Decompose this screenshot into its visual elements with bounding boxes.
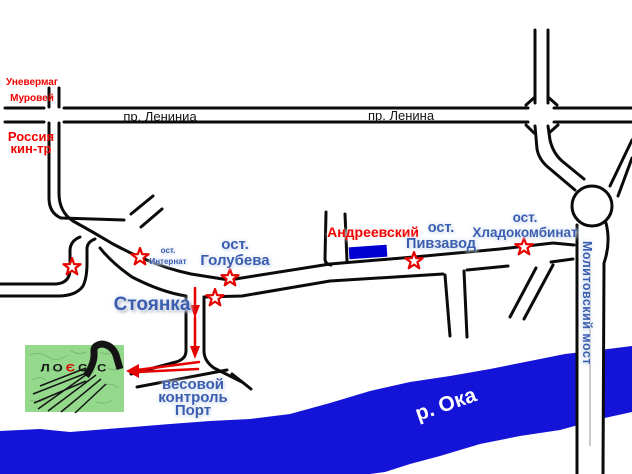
label-univermag-line1: Уневермаг xyxy=(6,75,58,91)
label-weight-control-port: весовой контроль Порт xyxy=(158,378,228,417)
label-stop-pivzavod-line1: ост. xyxy=(406,221,476,237)
crossing-ticks xyxy=(526,97,558,133)
label-stop-pivzavod-line2: Пивзавод xyxy=(406,237,476,253)
diagonal-street xyxy=(510,265,553,319)
right-cross-street-lower xyxy=(535,126,575,190)
label-stop-pivzavod: ост. Пивзавод xyxy=(406,221,476,253)
label-stop-internat-line1: ост. xyxy=(149,245,186,256)
label-stop-golubeva-line1: ост. xyxy=(200,237,269,253)
label-stop-golubeva: ост. Голубева xyxy=(200,237,269,269)
star-icon-internat xyxy=(131,248,148,264)
logo-text-accent: Є xyxy=(66,361,78,374)
label-parking: Стоянка xyxy=(114,295,191,315)
side-street-down xyxy=(445,271,467,337)
label-stop-hladokombinat-line1: ост. xyxy=(472,211,577,226)
label-univermag-line2: Муровей xyxy=(6,91,58,107)
logo-text-part1: ЛО xyxy=(41,361,66,374)
label-molitovsky-bridge: Молитовский мост xyxy=(580,228,593,378)
label-russia-line2: кин-тр xyxy=(8,143,54,155)
andreevsky-building xyxy=(349,245,388,260)
logo-plate xyxy=(25,344,124,413)
label-stop-hladokombinat: ост. Хладокомбинат xyxy=(472,211,577,241)
label-stop-internat: ост. Интернат xyxy=(149,245,186,267)
label-stop-hladokombinat-line2: Хладокомбинат xyxy=(472,226,577,241)
route-map: Уневермаг Муровей пр. Лениниа пр. Ленина… xyxy=(0,0,632,474)
label-stop-internat-line2: Интернат xyxy=(149,256,186,267)
cutoff-road-stub xyxy=(131,196,162,227)
logo-text: ЛОЄСіС xyxy=(41,362,110,374)
right-cross-street-upper xyxy=(535,30,548,103)
star-icon-golubeva xyxy=(221,269,238,285)
label-univermag: Уневермаг Муровей xyxy=(6,75,58,107)
logo-text-part2: СіС xyxy=(78,361,109,374)
star-icon-parking xyxy=(206,289,223,305)
label-stop-golubeva-line2: Голубева xyxy=(200,253,269,269)
label-lenin-avenue-right: пр. Ленина xyxy=(368,109,434,123)
label-russia-cinema: Россия кин-тр xyxy=(8,131,54,156)
roundabout xyxy=(572,186,612,226)
label-lenin-avenue-left: пр. Лениниа xyxy=(123,110,196,124)
star-icon-west xyxy=(63,258,80,274)
west-road-bottom-edge xyxy=(0,239,95,296)
star-icon-pivzavod xyxy=(405,252,422,268)
northeast-road xyxy=(610,140,632,196)
west-road-top-edge xyxy=(0,237,80,284)
